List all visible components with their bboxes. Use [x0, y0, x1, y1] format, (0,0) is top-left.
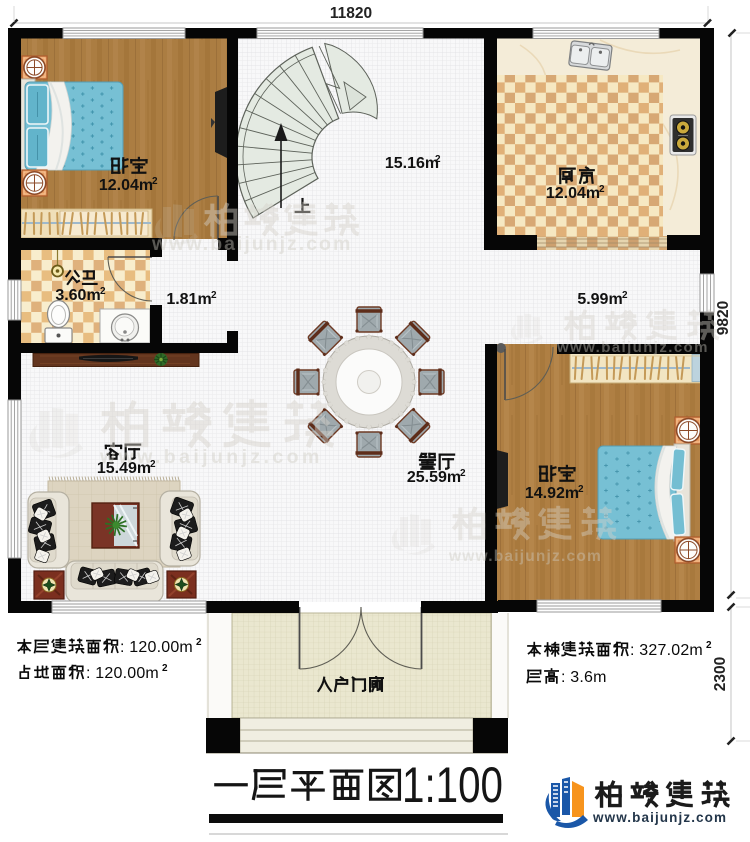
svg-text:: 120.00m: : 120.00m [120, 639, 193, 656]
svg-text:14.92m: 14.92m [525, 485, 579, 502]
svg-text:11820: 11820 [330, 5, 372, 22]
svg-text:25.59m: 25.59m [407, 469, 461, 486]
svg-text:2: 2 [706, 640, 712, 651]
svg-text:2: 2 [578, 484, 584, 495]
svg-text:5.99m: 5.99m [577, 291, 622, 308]
svg-text:: 120.00m: : 120.00m [86, 665, 159, 682]
svg-text:2: 2 [599, 184, 605, 195]
svg-text:: 3.6m: : 3.6m [561, 669, 607, 686]
svg-text:1:100: 1:100 [402, 757, 503, 813]
svg-text:2: 2 [196, 637, 202, 648]
svg-text:2300: 2300 [712, 657, 729, 691]
svg-text:2: 2 [152, 176, 158, 187]
svg-text:www.baijunjz.com: www.baijunjz.com [151, 233, 352, 255]
svg-text:2: 2 [435, 154, 441, 165]
svg-text:2: 2 [100, 286, 106, 297]
svg-text:: 327.02m: : 327.02m [630, 642, 703, 659]
svg-text:9820: 9820 [715, 301, 732, 335]
svg-text:2: 2 [162, 663, 168, 674]
svg-text:2: 2 [211, 290, 217, 301]
svg-text:2: 2 [460, 468, 466, 479]
svg-text:www.baijunjz.com: www.baijunjz.com [448, 548, 602, 565]
svg-text:3.60m: 3.60m [55, 287, 100, 304]
svg-text:12.04m: 12.04m [546, 185, 600, 202]
svg-text:12.04m: 12.04m [99, 177, 153, 194]
svg-text:1.81m: 1.81m [166, 291, 211, 308]
svg-text:www.baijunjz.com: www.baijunjz.com [592, 810, 727, 825]
svg-text:www.baijunjz.com: www.baijunjz.com [99, 446, 323, 468]
svg-text:15.16m: 15.16m [385, 155, 439, 172]
svg-text:www.baijunjz.com: www.baijunjz.com [556, 339, 709, 356]
svg-text:2: 2 [622, 290, 628, 301]
